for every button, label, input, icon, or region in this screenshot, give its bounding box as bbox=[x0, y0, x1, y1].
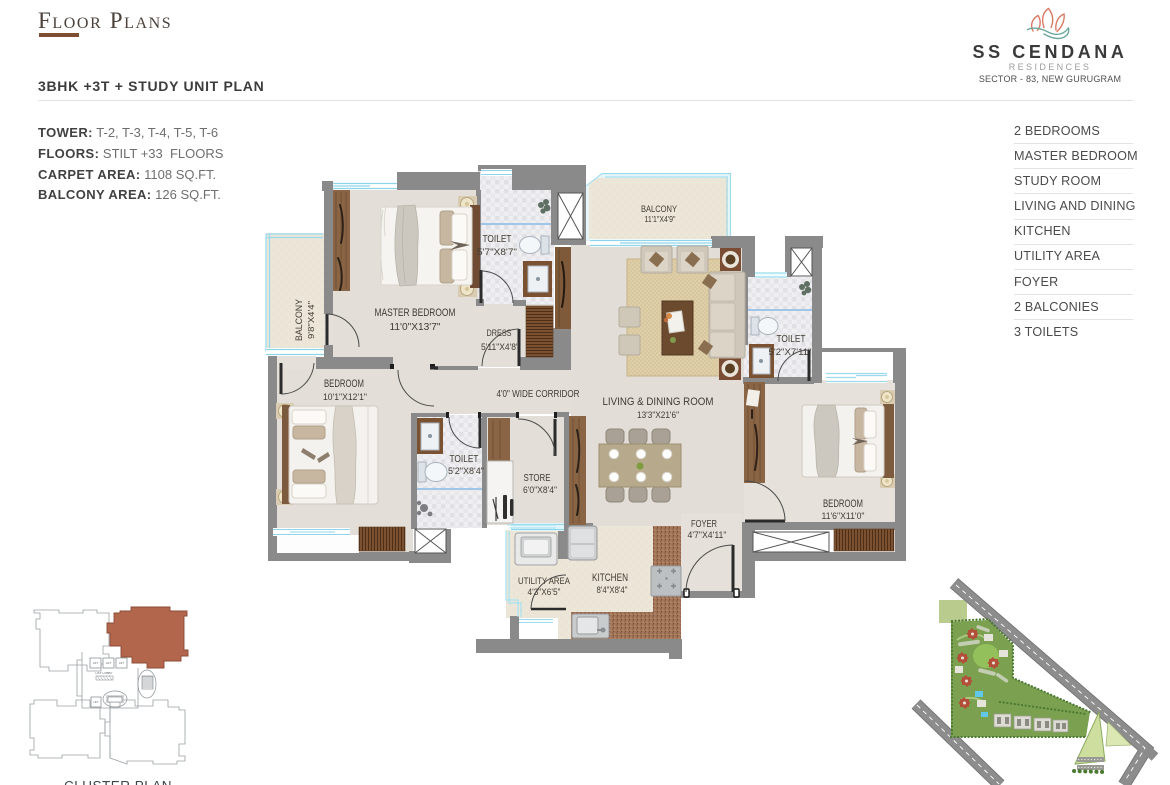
svg-text:FOYER: FOYER bbox=[691, 519, 717, 530]
svg-text:MASTER BEDROOM: MASTER BEDROOM bbox=[375, 307, 456, 319]
svg-text:11'1"X4'9": 11'1"X4'9" bbox=[645, 214, 676, 224]
svg-text:6'0"X8'4": 6'0"X8'4" bbox=[523, 485, 557, 496]
svg-text:LIVING & DINING ROOM: LIVING & DINING ROOM bbox=[603, 396, 714, 408]
svg-text:BEDROOM: BEDROOM bbox=[324, 378, 364, 390]
svg-text:5'2"X7'11": 5'2"X7'11" bbox=[769, 347, 812, 358]
svg-text:BALCONY: BALCONY bbox=[294, 299, 304, 341]
svg-text:CLUSTER PLAN: CLUSTER PLAN bbox=[64, 779, 172, 785]
svg-text:BALCONY: BALCONY bbox=[641, 204, 677, 214]
svg-text:LIFT LOBBY: LIFT LOBBY bbox=[96, 671, 113, 675]
svg-text:KITCHEN: KITCHEN bbox=[592, 572, 628, 584]
svg-text:TOILET: TOILET bbox=[777, 333, 806, 345]
svg-text:5'7"X8'7": 5'7"X8'7" bbox=[477, 247, 517, 258]
svg-text:13'3"X21'6": 13'3"X21'6" bbox=[637, 410, 679, 421]
svg-text:LIFT: LIFT bbox=[106, 661, 112, 665]
svg-text:11'6"X11'0": 11'6"X11'0" bbox=[822, 511, 865, 522]
svg-text:11'0"X13'7": 11'0"X13'7" bbox=[390, 322, 441, 333]
svg-text:BEDROOM: BEDROOM bbox=[823, 498, 863, 510]
svg-text:STORE: STORE bbox=[524, 472, 551, 484]
svg-text:UTILITY AREA: UTILITY AREA bbox=[518, 576, 570, 587]
svg-text:4'0" WIDE CORRIDOR: 4'0" WIDE CORRIDOR bbox=[497, 388, 580, 400]
svg-text:4'7"X4'11": 4'7"X4'11" bbox=[688, 530, 727, 540]
svg-text:DRESS: DRESS bbox=[487, 328, 512, 338]
svg-text:5'2"X8'4": 5'2"X8'4" bbox=[448, 466, 484, 477]
svg-text:10'1"X12'1": 10'1"X12'1" bbox=[323, 392, 367, 403]
svg-text:TOILET: TOILET bbox=[483, 233, 512, 245]
svg-text:LIFT: LIFT bbox=[93, 661, 99, 665]
svg-text:8'4"X8'4": 8'4"X8'4" bbox=[597, 585, 628, 596]
svg-text:TOILET: TOILET bbox=[450, 453, 479, 465]
svg-text:9'8"X4'4": 9'8"X4'4" bbox=[306, 301, 316, 339]
svg-text:4'3"X6'5": 4'3"X6'5" bbox=[528, 587, 561, 597]
svg-text:LIFT: LIFT bbox=[119, 661, 125, 665]
svg-text:5'11"X4'8": 5'11"X4'8" bbox=[481, 342, 519, 352]
svg-text:LIFT: LIFT bbox=[93, 700, 99, 704]
